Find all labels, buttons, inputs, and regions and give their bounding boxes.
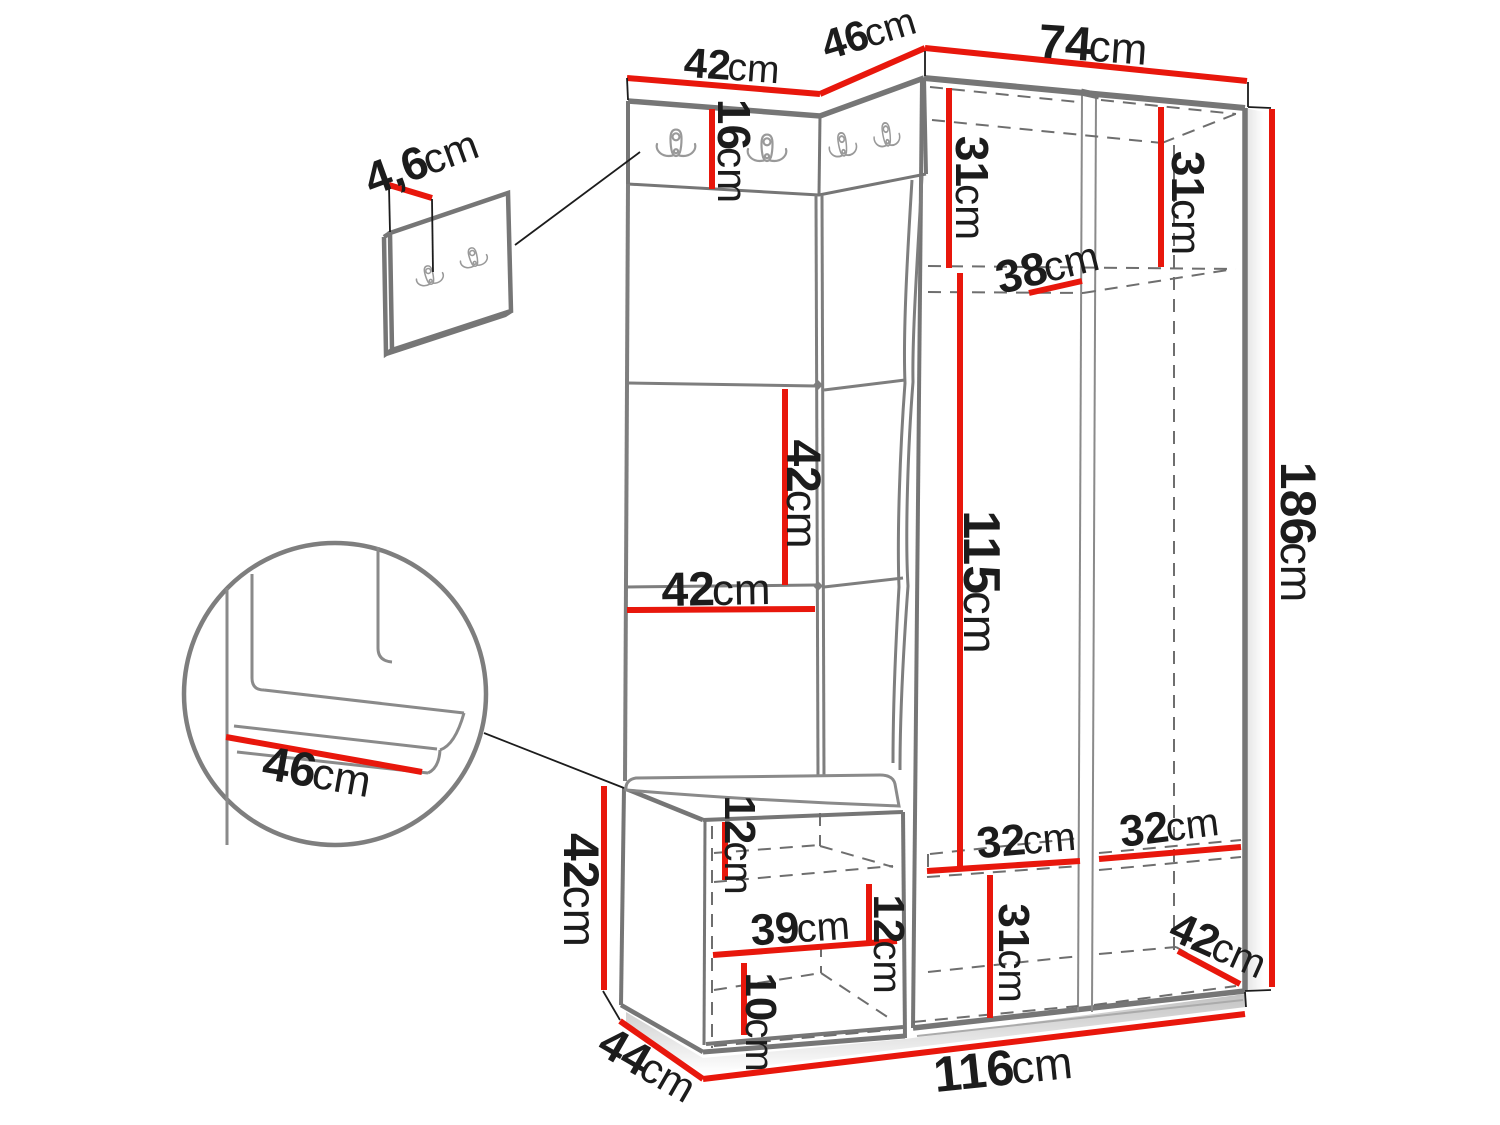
svg-text:31cm: 31cm [946, 136, 998, 240]
svg-text:10cm: 10cm [736, 972, 785, 1071]
svg-text:31cm: 31cm [989, 903, 1038, 1002]
svg-text:16cm: 16cm [708, 99, 760, 203]
svg-text:42cm: 42cm [661, 562, 771, 617]
svg-text:186cm: 186cm [1270, 462, 1326, 602]
svg-text:42cm: 42cm [553, 833, 609, 947]
svg-text:31cm: 31cm [1162, 151, 1214, 255]
svg-text:12cm: 12cm [864, 894, 913, 993]
svg-text:115cm: 115cm [952, 510, 1010, 654]
svg-text:42cm: 42cm [776, 439, 829, 548]
svg-text:39cm: 39cm [749, 900, 851, 956]
svg-text:32cm: 32cm [975, 811, 1078, 868]
svg-text:74cm: 74cm [1037, 15, 1149, 75]
svg-text:12cm: 12cm [715, 795, 764, 894]
